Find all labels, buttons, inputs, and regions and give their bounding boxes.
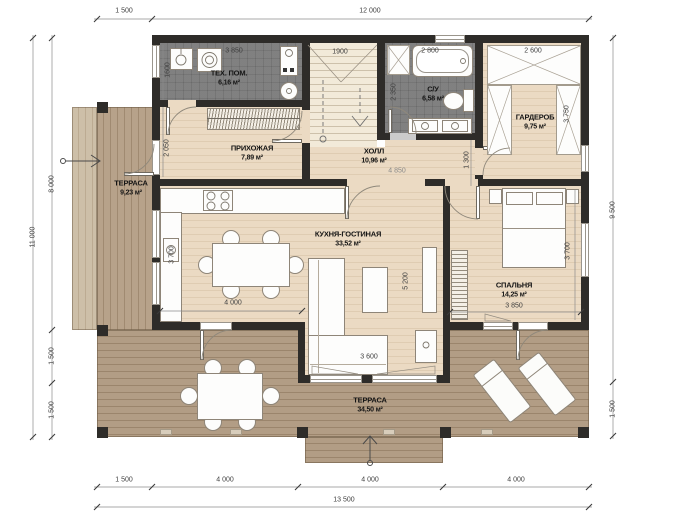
door-opening-entry bbox=[152, 140, 160, 175]
dim-wardrobe-depth: 3 750 bbox=[564, 105, 571, 123]
dim-top-1500: 1 500 bbox=[115, 8, 133, 15]
window-bedroom-bottom bbox=[483, 322, 513, 330]
dim-bath-width: 2 800 bbox=[421, 48, 439, 55]
dim-kitchen-width: 4 000 bbox=[224, 300, 242, 307]
dim-tech-width: 3 850 bbox=[225, 48, 243, 55]
deck-post bbox=[97, 325, 108, 336]
coffee-table bbox=[362, 267, 388, 313]
sofa-back-line bbox=[318, 260, 319, 373]
room-name: ГАРДЕРОБ bbox=[516, 113, 555, 123]
nightstand-left bbox=[489, 189, 502, 204]
deck-baluster bbox=[160, 429, 172, 435]
toilet-tank bbox=[463, 89, 474, 112]
wall-top bbox=[152, 35, 589, 43]
deck-post bbox=[578, 427, 589, 438]
room-area: 10,96 м² bbox=[361, 156, 386, 165]
dim-living-width: 3 600 bbox=[360, 354, 378, 361]
wall-hallway-right bbox=[302, 143, 310, 186]
dim-left-1500-b: 1 500 bbox=[49, 401, 56, 419]
cooktop bbox=[203, 190, 233, 211]
boiler-switch bbox=[290, 68, 294, 72]
vanity-sink-left bbox=[412, 120, 438, 132]
wall-tech-bottom-b bbox=[196, 100, 310, 107]
door-leaf-bedroom bbox=[476, 186, 480, 219]
pillow-left bbox=[506, 192, 533, 205]
wall-bedroom-bottom-a bbox=[443, 322, 483, 330]
dim-left-1500-a: 1 500 bbox=[49, 347, 56, 365]
door-opening-wardrobe bbox=[475, 148, 483, 175]
deck-baluster bbox=[383, 429, 395, 435]
window-wardrobe-right bbox=[581, 145, 589, 172]
dim-right-9500: 9 500 bbox=[610, 201, 617, 219]
room-name: КУХНЯ-ГОСТИНАЯ bbox=[315, 230, 381, 240]
door-leaf-bath bbox=[388, 109, 392, 133]
tech-sink bbox=[170, 48, 193, 70]
room-name: ТЕРРАСА bbox=[353, 396, 386, 406]
door-opening-bedroom bbox=[445, 179, 478, 186]
wall-stairs-right bbox=[377, 35, 385, 140]
dim-left-total-11000: 11 000 bbox=[30, 227, 37, 248]
wall-bedroom-left bbox=[443, 186, 450, 383]
room-name: С/У bbox=[422, 85, 444, 95]
wall-bay-bottom-a bbox=[298, 375, 310, 383]
dim-bedroom-width: 3 850 bbox=[505, 303, 523, 310]
dim-wardrobe-width: 2 600 bbox=[524, 48, 542, 55]
door-opening-bath bbox=[390, 133, 416, 140]
door-leaf-entry bbox=[124, 172, 154, 176]
deck-post bbox=[440, 427, 451, 438]
dim-bedroom-depth: 3 700 bbox=[565, 242, 572, 260]
room-area: 9,75 м² bbox=[516, 122, 555, 131]
wall-bay-bottom-b bbox=[362, 375, 372, 383]
door-leaf-hallway bbox=[272, 139, 302, 143]
terrace-chair bbox=[180, 387, 198, 405]
room-area: 7,89 м² bbox=[231, 153, 273, 162]
door-leaf-kitchen-terrace bbox=[200, 330, 204, 360]
room-label-kitchen-living: КУХНЯ-ГОСТИНАЯ 33,52 м² bbox=[315, 230, 381, 249]
terrace-porch-step bbox=[305, 437, 443, 463]
wall-hall-bottom bbox=[425, 179, 445, 186]
wall-tech-right bbox=[302, 35, 310, 110]
dim-hall-passage: 1 300 bbox=[464, 151, 471, 169]
dim-bottom-4000-a: 4 000 bbox=[216, 477, 234, 484]
wall-kitchen-bottom-a bbox=[152, 322, 200, 330]
window-living-bay-2 bbox=[372, 375, 437, 383]
dim-hall-width: 4 850 bbox=[388, 168, 406, 175]
closet-left bbox=[487, 85, 512, 155]
dim-bottom-4000-b: 4 000 bbox=[361, 477, 379, 484]
deck-baluster bbox=[481, 429, 493, 435]
dim-right-1500: 1 500 bbox=[610, 400, 617, 418]
door-opening-bedroom-terrace bbox=[518, 322, 548, 330]
boiler-switch bbox=[283, 68, 287, 72]
room-label-bathroom: С/У 6,58 м² bbox=[422, 85, 444, 104]
door-opening-tech bbox=[168, 100, 196, 107]
wall-hallway-bottom bbox=[152, 179, 347, 186]
dim-bottom-4000-c: 4 000 bbox=[507, 477, 525, 484]
room-area: 9,23 м² bbox=[114, 188, 147, 197]
opening-hall-living bbox=[347, 179, 425, 186]
room-area: 14,25 м² bbox=[496, 290, 532, 299]
dim-tech-depth: 1600 bbox=[165, 62, 172, 78]
kitchen-counter-top bbox=[160, 188, 345, 214]
door-leaf-bedroom-terrace bbox=[516, 330, 520, 360]
dim-top-12000: 12 000 bbox=[359, 8, 380, 15]
wall-tech-bottom-a bbox=[152, 100, 168, 107]
hall-floor-strip bbox=[385, 140, 483, 147]
wall-bay-left bbox=[298, 322, 305, 383]
stove-fireplace bbox=[415, 330, 437, 363]
bedroom-wardrobe bbox=[451, 250, 468, 320]
nightstand-right bbox=[566, 189, 579, 204]
room-name: ПРИХОЖАЯ bbox=[231, 144, 273, 154]
deck-post bbox=[97, 427, 108, 438]
dim-living-depth: 5 200 bbox=[403, 272, 410, 290]
room-label-bedroom: СПАЛЬНЯ 14,25 м² bbox=[496, 281, 532, 300]
room-label-wardrobe: ГАРДЕРОБ 9,75 м² bbox=[516, 113, 555, 132]
window-living-bay-1 bbox=[310, 375, 362, 383]
blanket-line bbox=[503, 228, 565, 229]
terrace-left-deck bbox=[97, 107, 153, 330]
door-leaf-hall-living bbox=[345, 186, 349, 219]
window-tech-left bbox=[152, 45, 160, 78]
wall-right bbox=[581, 43, 589, 330]
room-label-hall: ХОЛЛ 10,96 м² bbox=[361, 147, 386, 166]
kitchen-counter-left bbox=[160, 212, 182, 322]
room-label-terrace-main: ТЕРРАСА 34,50 м² bbox=[353, 396, 386, 415]
dim-bottom-1500: 1 500 bbox=[115, 477, 133, 484]
tv-console bbox=[422, 247, 437, 313]
dim-hallway-door: 2 050 bbox=[164, 139, 171, 157]
deck-post bbox=[97, 102, 108, 113]
room-name: ХОЛЛ bbox=[361, 147, 386, 157]
coat-rack-rail bbox=[207, 118, 300, 119]
window-bedroom-right bbox=[581, 223, 589, 277]
wall-bedroom-top bbox=[478, 179, 589, 186]
terrace-chair bbox=[262, 387, 280, 405]
room-label-terrace-left: ТЕРРАСА 9,23 м² bbox=[114, 179, 147, 198]
sofa-back-line bbox=[310, 364, 386, 365]
dim-bottom-total-13500: 13 500 bbox=[333, 497, 354, 504]
door-leaf-tech bbox=[166, 107, 170, 135]
room-name: ТЕХ. ПОМ. bbox=[211, 69, 248, 79]
water-heater-tank bbox=[280, 82, 298, 100]
room-area: 6,58 м² bbox=[422, 94, 444, 103]
dim-stair-width: 1900 bbox=[332, 49, 348, 56]
window-bath-top bbox=[435, 35, 465, 43]
dim-kitchen-depth: 3 700 bbox=[169, 246, 176, 264]
vanity-sink-right bbox=[442, 120, 468, 132]
wall-bath-bottom-b bbox=[416, 133, 483, 140]
door-opening-kitchen-terrace bbox=[200, 322, 232, 330]
deck-post bbox=[297, 427, 308, 438]
coat-rack bbox=[207, 108, 300, 130]
room-area: 6,16 м² bbox=[211, 78, 248, 87]
dining-table bbox=[212, 243, 290, 287]
room-name: СПАЛЬНЯ bbox=[496, 281, 532, 291]
window-kitchen-left-2 bbox=[152, 262, 160, 305]
window-kitchen-left-1 bbox=[152, 210, 160, 258]
toilet-bowl bbox=[443, 92, 464, 110]
dim-bath-depth: 2 350 bbox=[391, 83, 398, 101]
pillow-right bbox=[536, 192, 563, 205]
terrace-table bbox=[197, 373, 263, 420]
room-area: 34,50 м² bbox=[353, 405, 386, 414]
terrace-left-step bbox=[72, 107, 97, 330]
room-area: 33,52 м² bbox=[315, 239, 381, 248]
wall-kitchen-bottom-b bbox=[232, 322, 305, 330]
wall-bath-bottom-a bbox=[377, 133, 390, 140]
room-label-tech: ТЕХ. ПОМ. 6,16 м² bbox=[211, 69, 248, 88]
stairs-floor bbox=[308, 43, 377, 147]
door-opening-hallway bbox=[302, 110, 310, 143]
bath-cabinet bbox=[387, 45, 410, 75]
room-label-hallway: ПРИХОЖАЯ 7,89 м² bbox=[231, 144, 273, 163]
wall-wardrobe-left-a bbox=[475, 35, 483, 148]
deck-baluster bbox=[230, 429, 242, 435]
floor-plan-drawing: 1 500 12 000 1 500 4 000 4 000 4 000 13 … bbox=[0, 0, 693, 520]
dim-left-8000: 8 000 bbox=[49, 175, 56, 193]
room-name: ТЕРРАСА bbox=[114, 179, 147, 189]
wall-bedroom-bottom-c bbox=[548, 322, 589, 330]
